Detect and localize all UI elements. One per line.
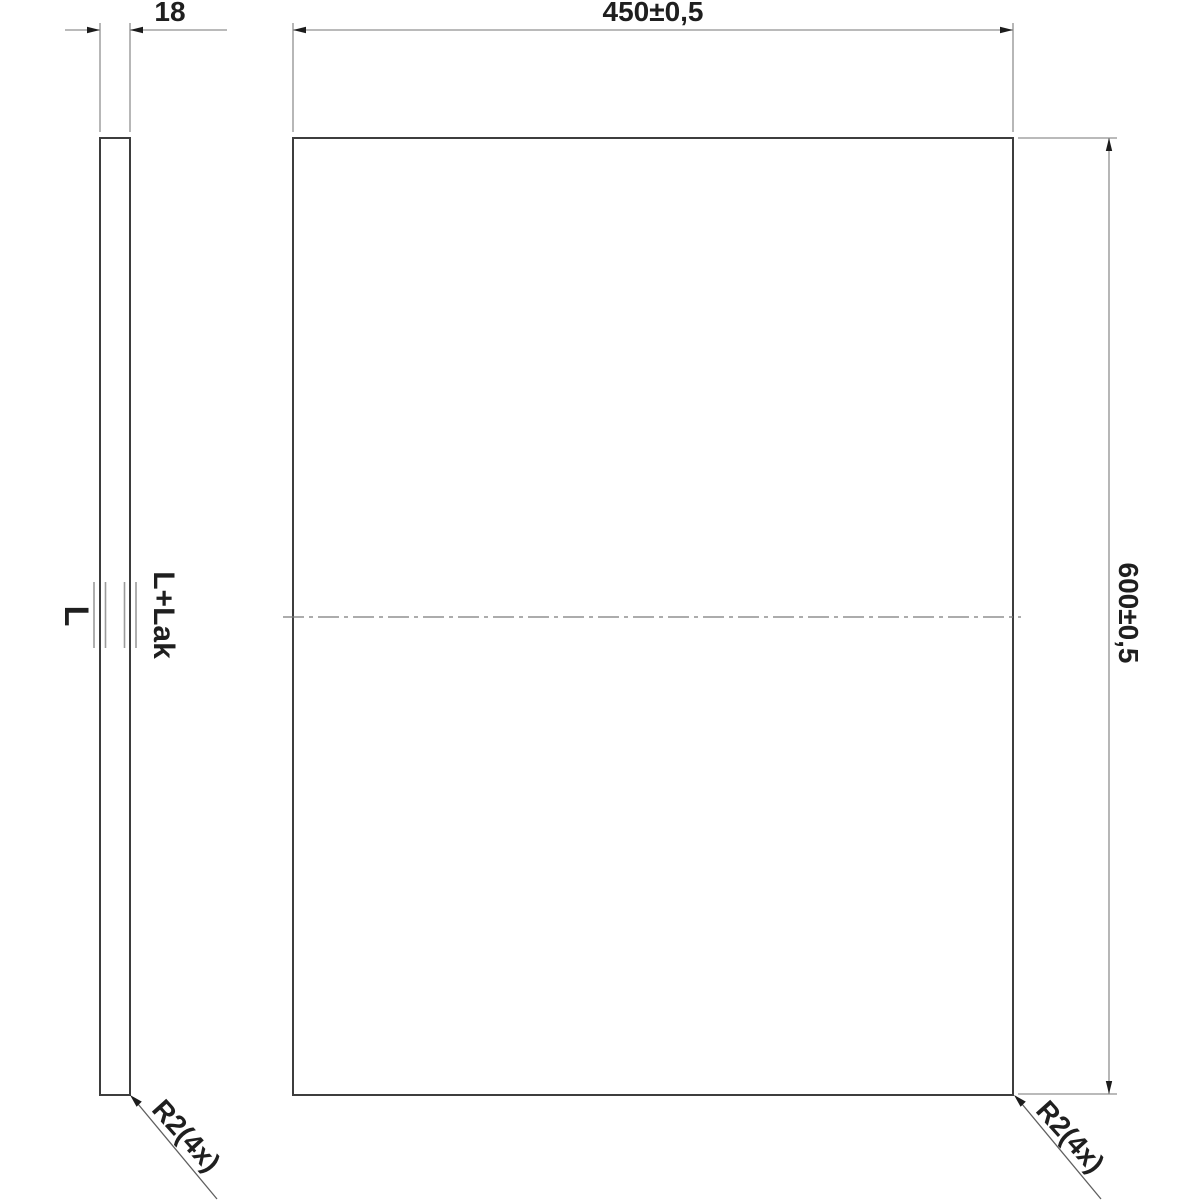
arrowhead-corner — [130, 1095, 142, 1107]
height-dimension-lines — [1018, 138, 1117, 1094]
technical-drawing-canvas: 18 450±0,5 600±0,5 L L+Lak R2(4x) R2(4x) — [0, 0, 1200, 1200]
surface-label-right: L+Lak — [148, 571, 178, 659]
thickness-dimension-lines — [65, 23, 227, 132]
height-dimension-text: 600±0,5 — [1114, 562, 1142, 663]
surface-label-left: L — [59, 606, 93, 627]
arrowhead-down — [1106, 1081, 1112, 1094]
width-dimension-lines — [293, 23, 1013, 132]
thickness-dimension-text: 18 — [154, 0, 185, 26]
arrowhead-right — [1000, 27, 1013, 33]
width-dimension-text: 450±0,5 — [602, 0, 703, 26]
drawing-geometry — [0, 0, 1200, 1200]
arrowhead-left — [293, 27, 306, 33]
arrowhead-corner — [1014, 1095, 1026, 1107]
side-view-outline — [100, 138, 130, 1095]
arrowhead-left — [130, 27, 143, 33]
arrowhead-right — [87, 27, 100, 33]
arrowhead-up — [1106, 138, 1112, 151]
